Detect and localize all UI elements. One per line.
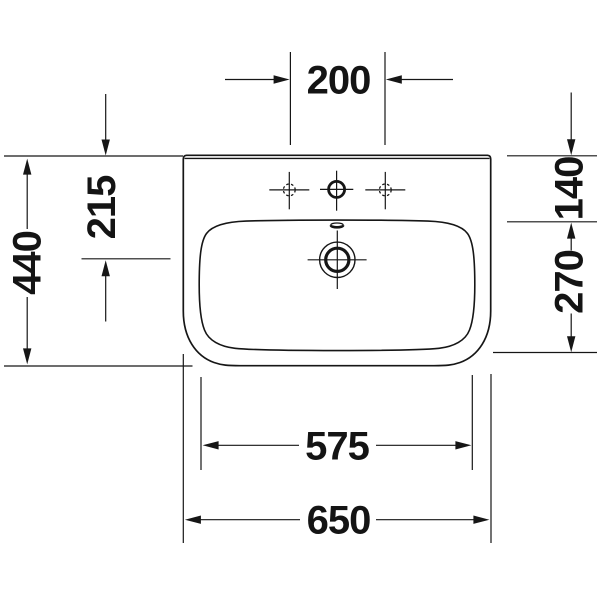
svg-text:575: 575 (305, 424, 369, 468)
svg-text:215: 215 (80, 175, 124, 239)
svg-text:440: 440 (6, 231, 50, 295)
svg-text:200: 200 (307, 59, 371, 103)
svg-text:140: 140 (548, 157, 592, 221)
svg-text:270: 270 (548, 250, 592, 314)
svg-text:650: 650 (307, 499, 371, 543)
